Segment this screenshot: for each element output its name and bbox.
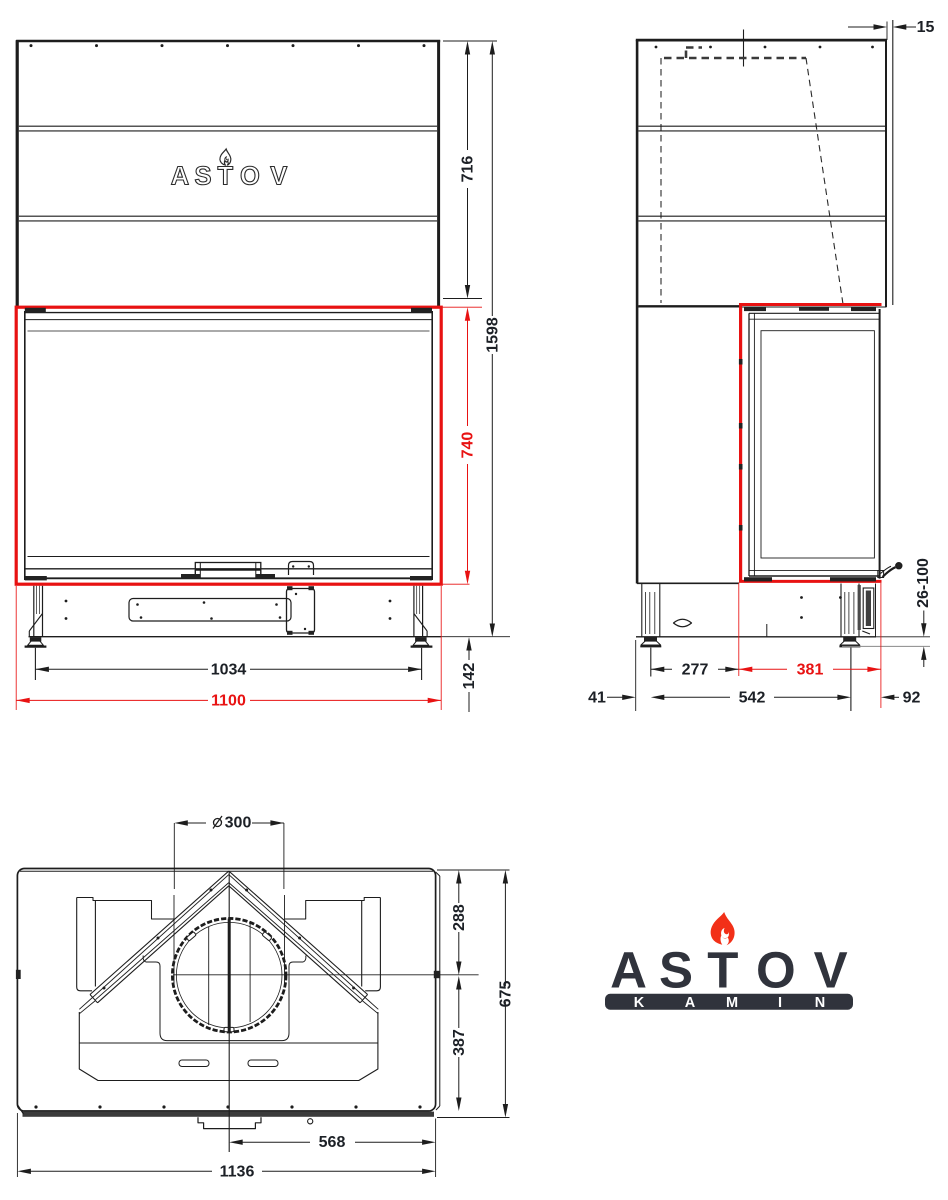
svg-text:716: 716 [460,156,477,183]
svg-text:381: 381 [797,661,824,678]
svg-text:1598: 1598 [484,317,501,353]
svg-text:288: 288 [451,904,468,931]
svg-text:T: T [707,942,738,999]
svg-text:A: A [685,995,696,1011]
svg-text:A: A [610,942,647,999]
svg-text:K: K [634,995,645,1011]
svg-text:41: 41 [588,689,606,706]
svg-text:542: 542 [739,689,766,706]
svg-text:1034: 1034 [211,661,247,678]
svg-text:O: O [240,163,260,191]
svg-text:V: V [270,163,287,191]
svg-text:1136: 1136 [220,1163,255,1180]
svg-text:M: M [726,995,738,1011]
svg-text:568: 568 [319,1134,346,1151]
svg-text:O: O [756,942,796,999]
svg-text:N: N [815,995,825,1011]
svg-text:V: V [814,942,848,999]
svg-text:142: 142 [461,663,478,690]
svg-text:T: T [218,163,234,191]
svg-text:S: S [194,163,211,191]
svg-text:387: 387 [451,1029,468,1056]
svg-text:26-100: 26-100 [915,558,932,608]
svg-text:15: 15 [917,19,935,36]
svg-text:S: S [659,942,693,999]
svg-text:I: I [778,995,782,1011]
svg-text:300: 300 [225,815,252,832]
svg-text:92: 92 [903,689,921,706]
svg-text:277: 277 [682,661,709,678]
svg-text:1100: 1100 [211,692,246,709]
svg-text:A: A [171,163,189,191]
svg-text:740: 740 [460,432,477,459]
svg-text:675: 675 [497,981,514,1008]
